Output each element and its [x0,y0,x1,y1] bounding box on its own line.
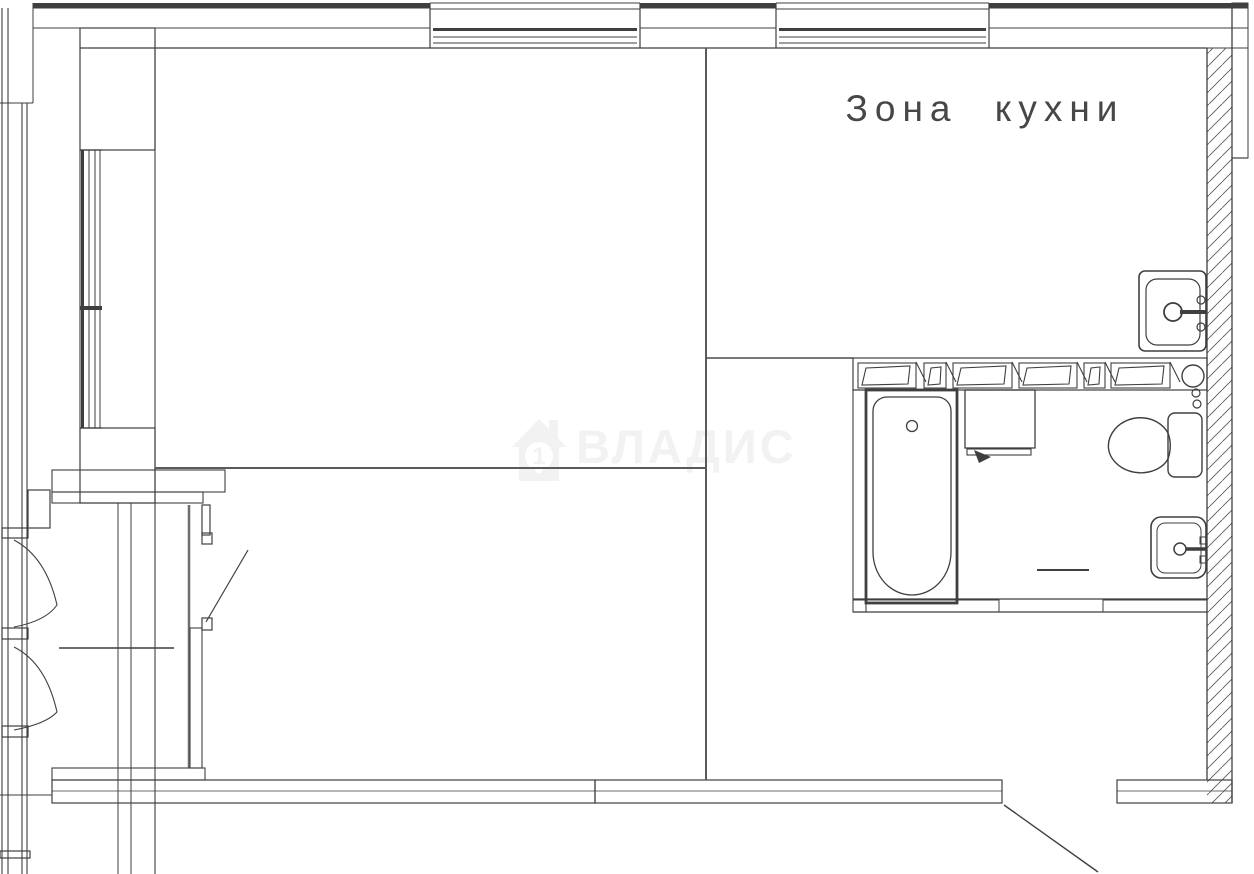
house-icon: 1 [512,419,566,481]
washing-machine [965,390,1035,463]
glazing-mullion [2,628,28,639]
entrance-door-swing [1004,805,1098,872]
window-top-left [430,3,640,48]
bathtub [866,390,957,603]
glazing-mullion [2,528,28,538]
door-jamb [202,505,210,535]
wall-pier [28,490,50,528]
bathroom-bottom-wall [853,599,1207,612]
faucet-icon [1174,543,1186,555]
floor-plan-drawing: 1 ВЛАДИС [0,0,1254,874]
balcony-glazing [0,3,33,874]
left-wall [28,28,155,874]
top-wall-edge [33,3,430,8]
bathroom-top-wall [853,358,1207,390]
faucet-icon [1164,303,1182,321]
bottom-wall [0,780,1232,803]
bathroom-sink [1151,517,1207,578]
kitchen-zone-label: Зона кухни [846,88,1125,129]
plumbing-point [1193,400,1201,408]
kitchen-sink [1139,271,1207,351]
toilet [1108,413,1202,477]
window-left [80,150,102,428]
right-wall [1207,3,1248,803]
wall-pier [80,28,155,150]
watermark-number: 1 [532,443,545,470]
partitions [155,48,853,780]
pipe-riser [1182,365,1204,387]
closet-door-leaf [206,550,248,622]
watermark-brand: ВЛАДИС [576,420,797,473]
closet [52,470,248,780]
watermark: 1 ВЛАДИС [512,419,797,481]
balcony-door-leaves [14,540,57,730]
bathtub-drain [907,421,918,432]
window-top-right [776,3,989,48]
floor-plan: 1 ВЛАДИС [0,0,1254,874]
